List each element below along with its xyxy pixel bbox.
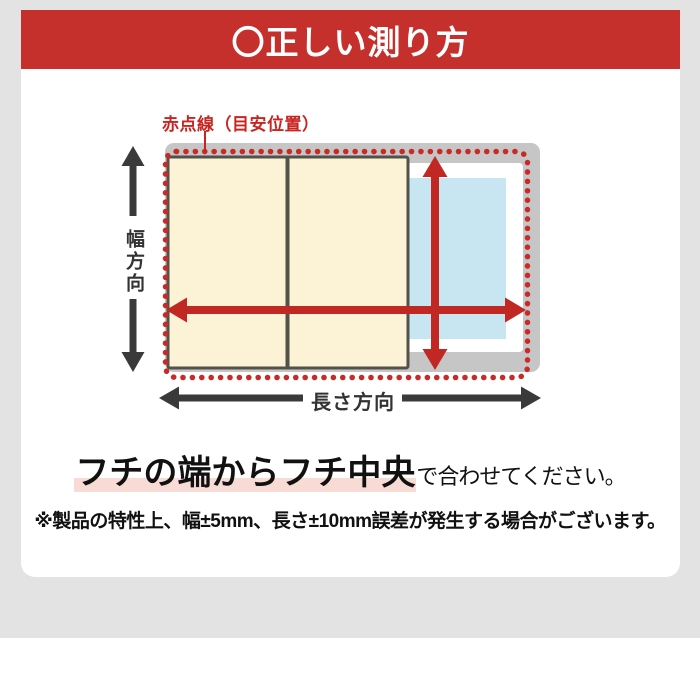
width-direction-label: 幅方向 <box>119 227 147 297</box>
instruction-suffix: で合わせてください。 <box>416 464 625 489</box>
instruction-text: フチの端からフチ中央で合わせてください。 <box>0 451 700 502</box>
page: 〇正しい測り方 赤点線（目安位置） <box>0 0 700 700</box>
instruction-highlight: フチの端からフチ中央 <box>74 454 416 492</box>
length-direction-label: 長さ方向 <box>303 386 403 415</box>
measurement-diagram <box>108 128 560 420</box>
section-header: 〇正しい測り方 <box>21 10 680 69</box>
section-title: 〇正しい測り方 <box>232 16 470 64</box>
tolerance-note: ※製品の特性上、幅±5mm、長さ±10mm誤差が発生する場合がございます。 <box>0 506 700 533</box>
